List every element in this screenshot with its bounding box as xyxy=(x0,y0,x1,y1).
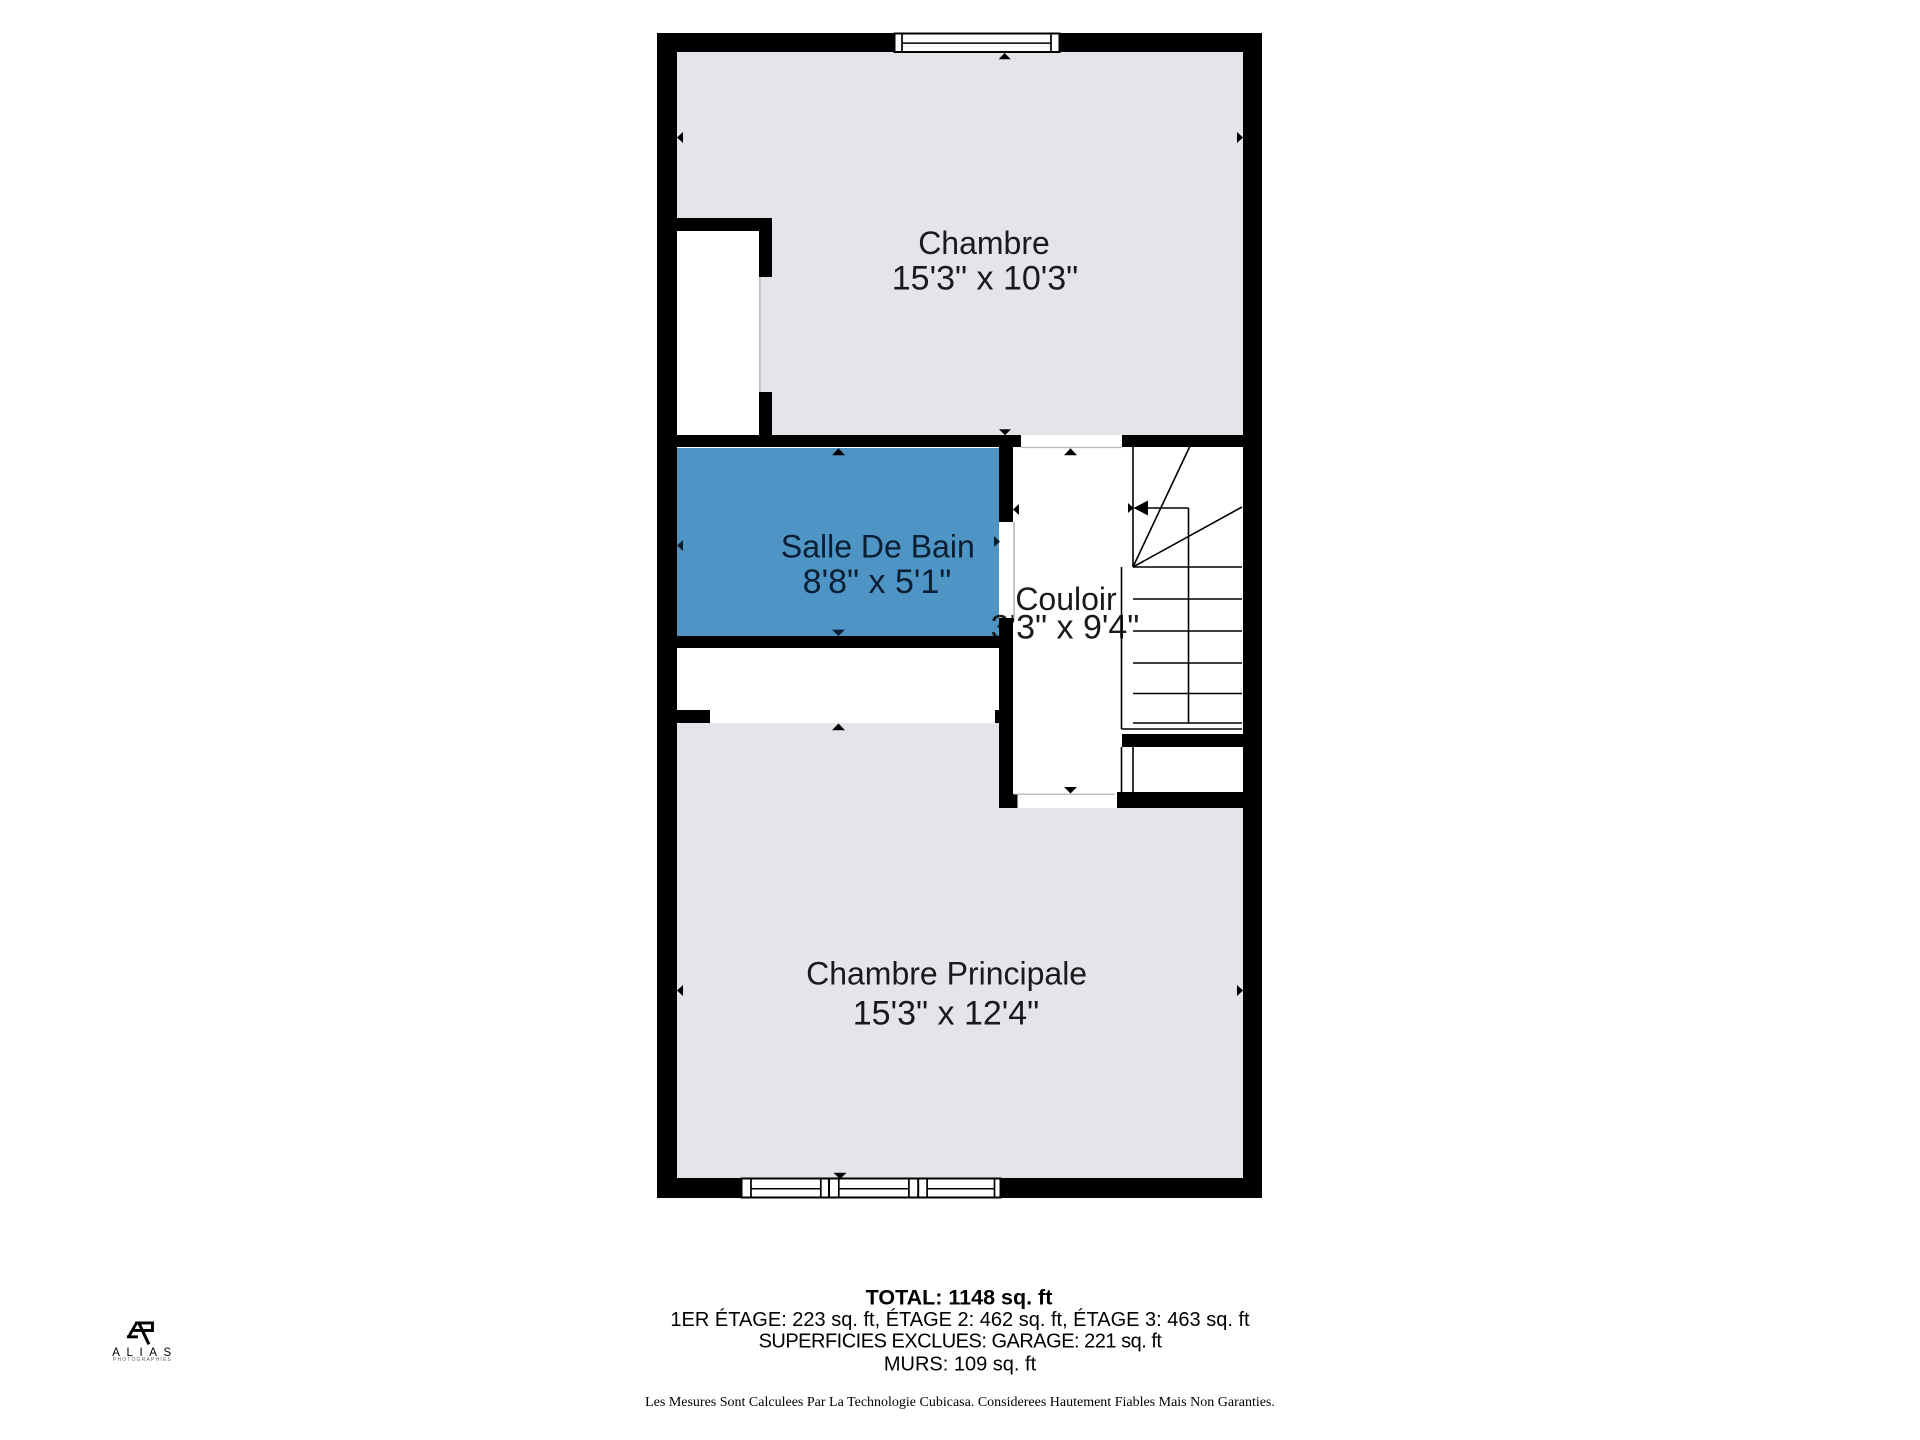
svg-text:MURS: 109 sq. ft: MURS: 109 sq. ft xyxy=(884,1354,1037,1376)
svg-text:15'3" x 10'3": 15'3" x 10'3" xyxy=(892,260,1078,298)
svg-text:TOTAL: 1148 sq. ft: TOTAL: 1148 sq. ft xyxy=(866,1286,1053,1310)
svg-text:1ER ÉTAGE: 223 sq. ft, ÉTAGE 2: 1ER ÉTAGE: 223 sq. ft, ÉTAGE 2: 462 sq. … xyxy=(670,1308,1250,1331)
svg-text:Chambre: Chambre xyxy=(918,225,1050,261)
svg-text:PHOTOGRAPHIES: PHOTOGRAPHIES xyxy=(113,1357,172,1363)
svg-text:Chambre Principale: Chambre Principale xyxy=(806,956,1087,992)
svg-text:Les Mesures Sont Calculees Par: Les Mesures Sont Calculees Par La Techno… xyxy=(645,1395,1275,1410)
svg-text:8'8" x 5'1": 8'8" x 5'1" xyxy=(803,563,952,601)
svg-text:Salle De Bain: Salle De Bain xyxy=(781,529,975,565)
svg-text:15'3" x 12'4": 15'3" x 12'4" xyxy=(853,995,1039,1033)
svg-text:SUPERFICIES EXCLUES: GARAGE: 2: SUPERFICIES EXCLUES: GARAGE: 221 sq. ft xyxy=(759,1331,1163,1353)
